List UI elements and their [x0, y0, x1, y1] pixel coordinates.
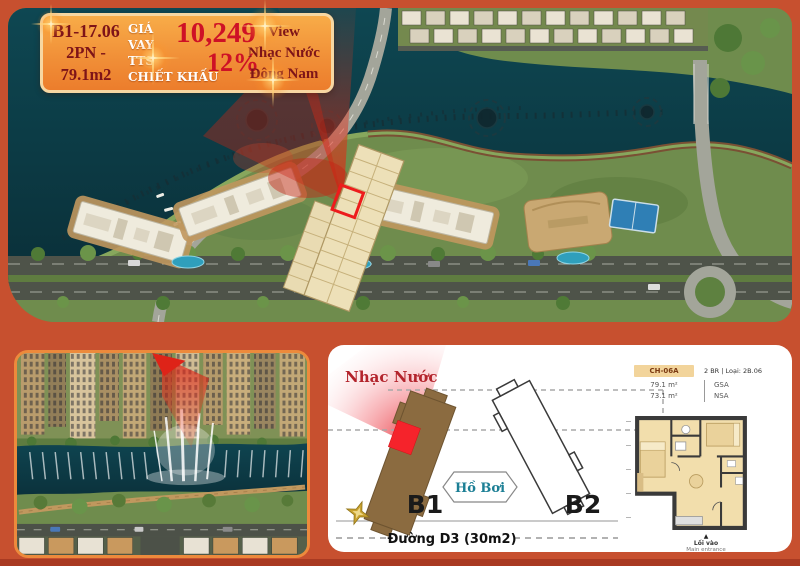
floor-plan-card: CH-06A 2 BR | Loại: 2B.06 79.1 m² GSA 73… — [624, 359, 786, 551]
floor-plan-drawing — [634, 415, 748, 531]
view-line-2: Nhạc Nước — [239, 43, 329, 64]
dimension-marks — [626, 421, 631, 521]
nsa-label: NSA — [704, 391, 729, 402]
unit-type-info: 2 BR | Loại: 2B.06 — [704, 365, 762, 377]
street — [17, 524, 307, 537]
unit-code: B1-17.06 — [47, 20, 125, 42]
boulevard — [8, 256, 792, 300]
entrance-label-vi: Lối vào — [668, 540, 744, 547]
view-line-1: View — [239, 22, 329, 43]
unit-type-code: CH-06A — [634, 365, 694, 377]
unit-bedrooms: 2PN - — [47, 42, 125, 64]
gsa-value: 79.1 m² — [634, 380, 694, 391]
sports-court — [609, 199, 658, 233]
nsa-value: 73.1 m² — [634, 391, 694, 402]
bottom-strip — [0, 559, 800, 566]
view-block: View Nhạc Nước Đông Nam — [239, 22, 329, 85]
view-line-3: Đông Nam — [239, 64, 329, 85]
triangle-up-icon: ▲ — [668, 533, 744, 540]
villa-row — [398, 8, 708, 51]
entrance-label-en: Main entrance — [668, 547, 744, 552]
gsa-label: GSA — [704, 380, 729, 391]
clubhouse — [523, 191, 613, 253]
entrance-marker: ▲ Lối vào Main entrance — [668, 533, 744, 552]
unit-info-callout: B1-17.06 2PN - 79.1m2 GIÁ VAY TTS CHIẾT … — [40, 13, 334, 93]
unit-summary: B1-17.06 2PN - 79.1m2 — [47, 20, 125, 86]
pool-callout: Hồ Bơi — [443, 472, 517, 502]
building2-label: B2 — [565, 490, 601, 519]
row-houses — [17, 537, 307, 555]
marketing-page: B1-17.06 2PN - 79.1m2 GIÁ VAY TTS CHIẾT … — [0, 0, 800, 566]
fountain-direction-label: Nhạc Nước — [345, 368, 437, 386]
floor-plan-header: CH-06A 2 BR | Loại: 2B.06 79.1 m² GSA 73… — [634, 365, 778, 402]
red-glow-2 — [233, 143, 293, 173]
fountain-photo — [14, 350, 310, 558]
roundabout — [684, 266, 736, 318]
road-label: Đường D3 (30m2) — [387, 532, 516, 547]
fountain-illustration — [17, 353, 307, 555]
site-plan-panel: Hồ Bơi B1 B2 Đường D3 (30m2) Nhạc Nước C… — [328, 345, 792, 552]
building1-label: B1 — [407, 490, 443, 519]
pool-label: Hồ Bơi — [455, 480, 505, 496]
unit-area: 79.1m2 — [47, 64, 125, 86]
